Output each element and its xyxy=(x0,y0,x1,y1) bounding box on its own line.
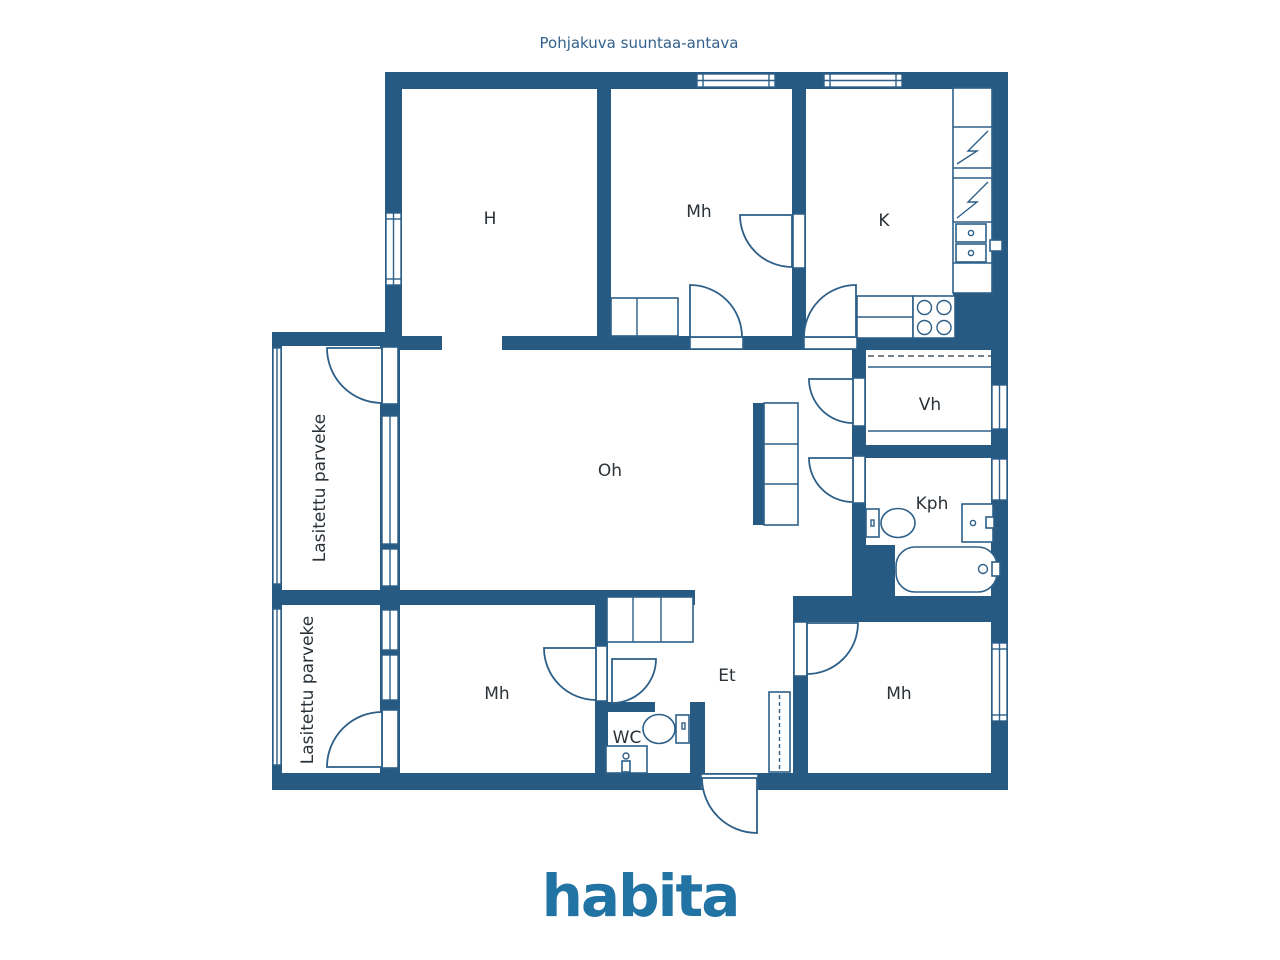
plan-disclaimer-title: Pohjakuva suuntaa-antava xyxy=(540,34,739,52)
room-label-mh-bl: Mh xyxy=(484,684,509,704)
door-mh-top-hall xyxy=(690,285,742,337)
balcony-lower-glazing-left xyxy=(273,609,281,765)
closet-mh-top xyxy=(611,298,678,336)
door-mh-top-k xyxy=(740,215,792,267)
room-label-mh-top: Mh xyxy=(686,202,711,222)
room-label-mh-br: Mh xyxy=(886,684,911,704)
closets xyxy=(607,298,798,772)
room-label-oh: Oh xyxy=(598,461,622,481)
window-h-left xyxy=(386,213,401,285)
room-label-kph: Kph xyxy=(916,494,949,514)
cabinet-oh xyxy=(753,403,798,525)
floorplan-svg: Pohjakuva suuntaa-antava H Mh K Oh Vh Kp… xyxy=(0,0,1280,960)
door-mh-bottom-left xyxy=(544,648,596,700)
door-balcony-upper xyxy=(327,348,382,403)
toilet-kph-icon xyxy=(866,509,915,538)
window-vh-right xyxy=(992,385,1007,429)
window-mh-top xyxy=(697,74,775,87)
floorplan-page: Pohjakuva suuntaa-antava H Mh K Oh Vh Kp… xyxy=(0,0,1280,960)
balcony-lower-glazing-right xyxy=(382,610,398,700)
sink-kph-icon xyxy=(962,504,994,542)
balcony-upper-label: Lasitettu parveke xyxy=(310,414,330,563)
sink-wc-icon xyxy=(606,746,647,773)
balcony-upper-glazing-right xyxy=(382,416,398,586)
window-mh-br-right xyxy=(992,643,1007,721)
door-balcony-lower xyxy=(327,712,382,767)
stove-icon xyxy=(913,296,955,338)
habita-logo: habita xyxy=(542,862,739,930)
closet-et-top xyxy=(607,597,693,642)
balcony-upper-glazing-left xyxy=(273,348,281,584)
room-label-et: Et xyxy=(718,666,736,686)
room-label-vh: Vh xyxy=(919,395,941,415)
door-entrance xyxy=(702,778,757,833)
toilet-wc-icon xyxy=(643,715,689,744)
door-k-hall xyxy=(804,285,856,337)
wardrobe-et xyxy=(769,692,790,772)
window-k-top xyxy=(824,74,902,87)
window-kph-right xyxy=(992,459,1007,500)
door-wc xyxy=(612,659,656,703)
room-label-h: H xyxy=(484,209,497,229)
balcony-lower-label: Lasitettu parveke xyxy=(298,616,318,765)
room-label-wc: WC xyxy=(613,728,642,748)
door-mh-bottom-right xyxy=(807,623,858,674)
kitchen-counter xyxy=(857,296,913,338)
bathtub-icon xyxy=(896,547,1000,592)
room-label-k: K xyxy=(878,211,890,231)
vh-closet-lines xyxy=(868,356,991,431)
door-vh xyxy=(809,379,853,423)
door-kph xyxy=(809,458,853,502)
